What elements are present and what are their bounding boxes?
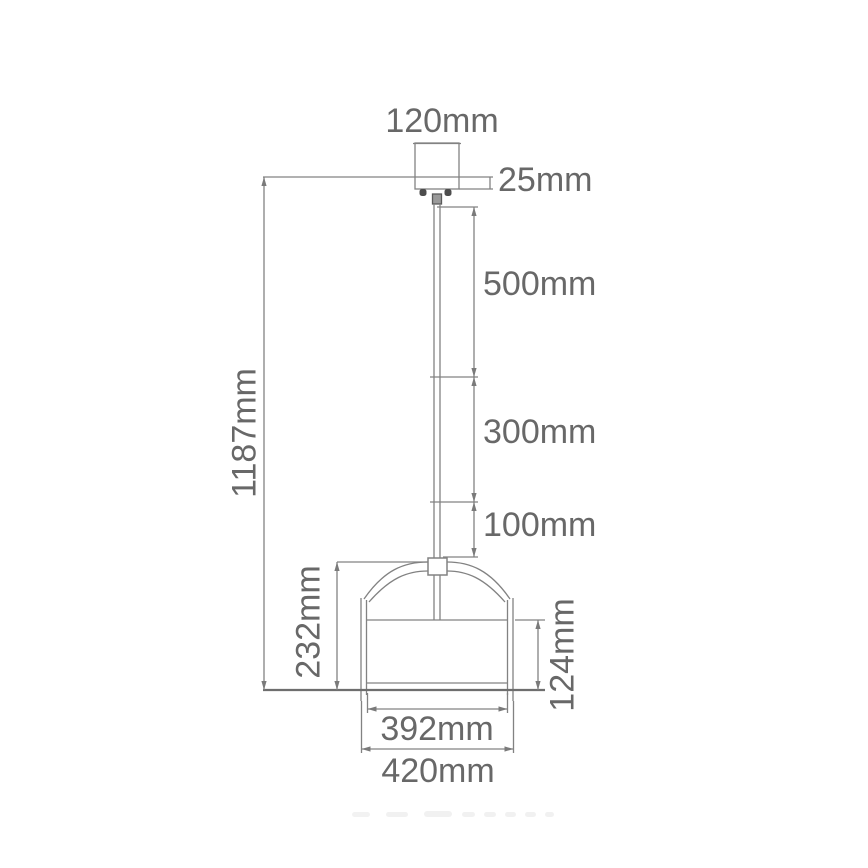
watermark-mark xyxy=(424,811,452,817)
overall-height-label: 1187mm xyxy=(229,368,262,498)
shoulder-left-inner-curve xyxy=(369,571,428,602)
canopy-foot-right xyxy=(445,189,452,196)
drum-height-label: 124mm xyxy=(547,598,580,711)
watermark-mark xyxy=(545,812,554,817)
shade-inner-width-label: 392mm xyxy=(377,713,497,746)
rod-connector xyxy=(433,194,442,204)
arrow-392-left xyxy=(368,706,377,711)
arrow-500-bottom xyxy=(471,368,476,377)
canopy-foot-left xyxy=(420,189,427,196)
arrow-500-top xyxy=(471,207,476,216)
rod-upper-label: 500mm xyxy=(483,268,596,301)
arrow-232-top xyxy=(334,562,339,571)
watermark-mark xyxy=(462,812,475,817)
arrow-420-right xyxy=(505,746,514,751)
watermark-mark xyxy=(484,812,496,817)
canopy-height-label: 25mm xyxy=(498,164,592,197)
arrow-232-bottom xyxy=(334,681,339,690)
arrow-100-top xyxy=(471,502,476,511)
shade-height-label: 232mm xyxy=(293,565,326,678)
arrow-124-bottom xyxy=(535,681,540,690)
arrow-1187-top xyxy=(261,177,266,186)
arrow-420-left xyxy=(362,746,371,751)
arrow-300-top xyxy=(471,377,476,386)
arrow-124-top xyxy=(535,620,540,629)
lamp-dimension-drawing: 120mm 25mm 500mm 300mm 100mm 1187mm 232m… xyxy=(0,0,868,868)
shade-outer-width-label: 420mm xyxy=(377,755,499,788)
watermark-mark xyxy=(505,812,516,817)
shoulder-left-outer-curve xyxy=(364,562,428,599)
arrow-100-bottom xyxy=(471,548,476,557)
arrow-1187-bottom xyxy=(261,681,266,690)
finial-block xyxy=(428,558,447,575)
watermark-mark xyxy=(525,812,536,817)
rod-middle-label: 300mm xyxy=(483,416,596,449)
canopy-outline xyxy=(415,143,459,189)
canopy-width-label: 120mm xyxy=(382,105,502,138)
arrow-392-right xyxy=(499,706,508,711)
shoulder-right-inner-curve xyxy=(447,571,505,602)
arrow-300-bottom xyxy=(471,493,476,502)
shoulder-right-outer-curve xyxy=(447,562,510,599)
rod-lower-label: 100mm xyxy=(483,509,596,542)
watermark-mark xyxy=(386,812,408,817)
faint-watermark xyxy=(352,811,554,817)
watermark-mark xyxy=(352,812,370,817)
